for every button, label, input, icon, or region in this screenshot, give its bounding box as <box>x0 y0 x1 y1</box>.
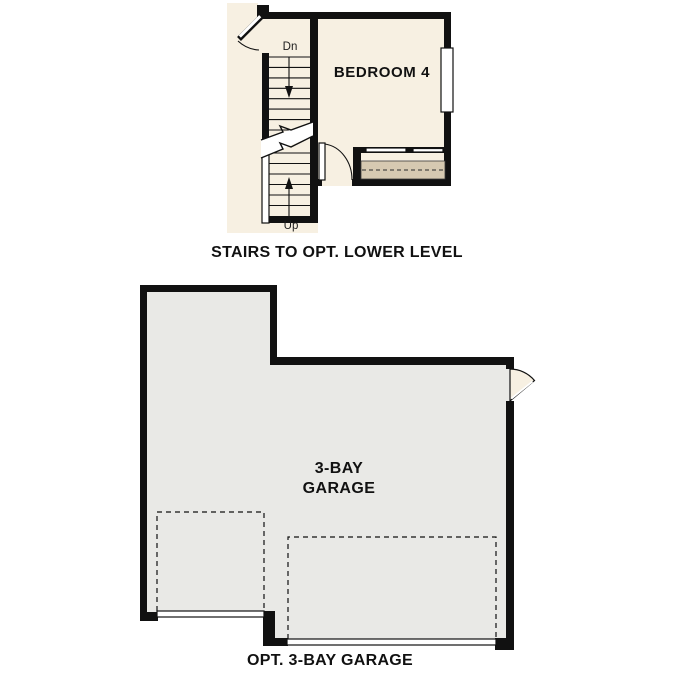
stair-right-wall <box>310 12 318 222</box>
garage-bottom-left-corner <box>140 612 158 621</box>
garage-exterior-door <box>510 369 535 401</box>
garage-room-label-line1: 3-BAY <box>264 459 414 479</box>
stairs-down-label: Dn <box>275 41 305 53</box>
upper-floor-plan <box>227 3 453 233</box>
top-wall-stub <box>257 5 269 13</box>
stairs-up-label: Up <box>276 220 306 232</box>
garage-room-label-line2: GARAGE <box>264 479 414 499</box>
garage-left-wall <box>140 285 147 621</box>
garage-room-label: 3-BAY GARAGE <box>264 459 414 499</box>
floor-plan-drawing <box>0 0 687 687</box>
garage-door-single-bay <box>157 611 264 617</box>
garage-step-wall-horizontal <box>263 638 288 646</box>
garage-right-wall-upper <box>506 357 514 369</box>
upper-plan-floor <box>227 3 451 233</box>
floor-plan-page: BEDROOM 4 Dn Up STAIRS TO OPT. LOWER LEV… <box>0 0 687 687</box>
garage-top-wall-left <box>140 285 277 292</box>
garage-top-wall-right <box>270 357 514 365</box>
garage-door-double-bay <box>287 639 496 645</box>
upper-plan-caption: STAIRS TO OPT. LOWER LEVEL <box>187 244 487 262</box>
top-wall <box>257 12 451 19</box>
closet-bypass-door-right <box>413 149 443 153</box>
garage-notch-wall <box>270 285 277 364</box>
garage-plan-caption: OPT. 3-BAY GARAGE <box>180 652 480 670</box>
garage-right-wall-lower <box>506 401 514 650</box>
stair-left-wall <box>262 53 269 142</box>
garage-bottom-right-corner <box>495 638 514 650</box>
bedroom-bottom-wall <box>352 179 451 186</box>
bedroom-label: BEDROOM 4 <box>312 64 452 81</box>
closet-bypass-door-left <box>366 148 406 152</box>
bedroom-door-leaf <box>319 143 325 180</box>
